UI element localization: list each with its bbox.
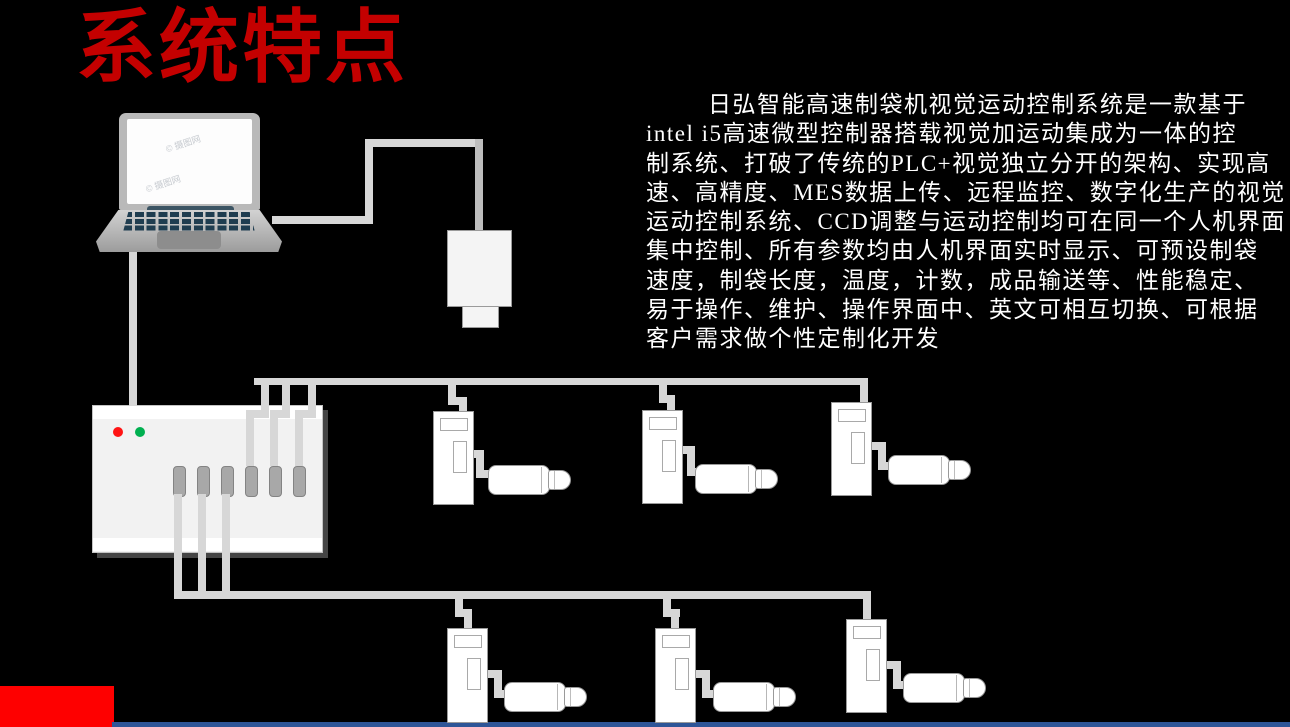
motor-shaft (963, 678, 986, 698)
status-led-green (135, 427, 145, 437)
power-led-red (113, 427, 123, 437)
shaft-line (761, 470, 762, 488)
drive-slot (467, 658, 481, 690)
controller-port (221, 466, 234, 497)
drive-slot (662, 440, 676, 472)
controller-port (269, 466, 282, 497)
shaft-line (969, 679, 970, 697)
camera-body (447, 230, 512, 307)
shaft-line (554, 471, 555, 489)
motor-endcap-line (956, 675, 957, 701)
motor-shaft (564, 687, 587, 707)
cable-bus-drive (671, 609, 679, 629)
cable-bus-drive (863, 599, 871, 620)
motor-endcap-line (541, 467, 542, 493)
page-title: 系统特点 (76, 6, 408, 90)
laptop-screen: © 摄图网 © 摄图网 (127, 119, 252, 204)
cable-laptop-camera (272, 216, 373, 224)
description-line: 运动控制系统、CCD调整与运动控制均可在同一个人机界面 (646, 207, 1288, 236)
controller-port (197, 466, 210, 497)
description-line: 集中控制、所有参数均由人机界面实时显示、可预设制袋 (646, 236, 1288, 265)
description-line: 速、高精度、MES数据上传、远程监控、数字化生产的视觉 (646, 178, 1288, 207)
laptop-keyboard (123, 212, 255, 232)
description-text: 日弘智能高速制袋机视觉运动控制系统是一款基于 intel i5高速微型控制器搭载… (646, 90, 1288, 354)
cable-port-bottom-bus (198, 494, 206, 595)
motor-shaft (755, 469, 778, 489)
description-line: 客户需求做个性定制化开发 (646, 324, 1288, 353)
controller-bottom-strip (93, 538, 322, 551)
cable-laptop-camera (475, 139, 483, 231)
servo-motor (903, 673, 989, 704)
drive-slot (675, 658, 689, 690)
motor-shaft (948, 460, 971, 480)
watermark-text: © 摄图网 (144, 172, 182, 196)
servo-motor (695, 464, 781, 495)
cable-laptop-camera (365, 139, 483, 147)
drive-slot (453, 441, 467, 473)
cable-bus-port (246, 410, 254, 466)
description-line: 易于操作、维护、操作界面中、英文可相互切换、可根据 (646, 295, 1288, 324)
drive-slot (851, 432, 865, 464)
drive-slot (866, 649, 880, 681)
servo-motor (504, 682, 590, 713)
red-accent-rectangle (0, 686, 114, 727)
servo-drive (433, 411, 474, 505)
laptop-trackpad (157, 231, 221, 249)
shaft-line (570, 688, 571, 706)
cable-port-bottom-bus (222, 494, 230, 595)
servo-drive (831, 402, 872, 496)
watermark-text: © 摄图网 (164, 132, 202, 156)
description-line: 日弘智能高速制袋机视觉运动控制系统是一款基于 (646, 90, 1288, 119)
servo-drive (655, 628, 696, 723)
motor-shaft (548, 470, 571, 490)
blue-footer-bar (112, 722, 1290, 727)
slide-canvas: 系统特点 日弘智能高速制袋机视觉运动控制系统是一款基于 intel i5高速微型… (0, 0, 1290, 727)
laptop-lid: © 摄图网 © 摄图网 (119, 113, 260, 210)
servo-drive (642, 410, 683, 504)
controller-port (245, 466, 258, 497)
description-line: 速度，制袋长度，温度，计数，成品输送等、性能稳定、 (646, 266, 1288, 295)
servo-motor (713, 682, 799, 713)
cable-bus-port (270, 410, 278, 466)
drive-display (454, 635, 482, 648)
cable-top-bus (254, 378, 868, 385)
servo-motor (888, 455, 974, 486)
shaft-line (779, 688, 780, 706)
controller-port (293, 466, 306, 497)
drive-display (662, 635, 690, 648)
cable-laptop-controller (129, 250, 137, 406)
drive-display (838, 409, 866, 422)
camera-illustration (447, 230, 517, 330)
motor-endcap-line (748, 466, 749, 492)
drive-display (853, 626, 881, 639)
laptop-illustration: © 摄图网 © 摄图网 (96, 110, 286, 255)
cable-bottom-bus (174, 591, 871, 599)
cable-bus-drive (459, 397, 467, 412)
shaft-line (954, 461, 955, 479)
drive-display (649, 417, 677, 430)
motor-endcap-line (557, 684, 558, 710)
motion-controller (92, 405, 323, 553)
motor-endcap-line (766, 684, 767, 710)
servo-motor (488, 465, 574, 496)
drive-display (440, 418, 468, 431)
cable-bus-port (295, 410, 303, 466)
description-line: intel i5高速微型控制器搭载视觉加运动集成为一体的控 (646, 119, 1288, 148)
controller-port (173, 466, 186, 497)
cable-bus-drive (667, 395, 675, 411)
cable-port-bottom-bus (174, 494, 182, 595)
servo-drive (846, 619, 887, 713)
servo-drive (447, 628, 488, 723)
motor-shaft (773, 687, 796, 707)
cable-bus-drive (464, 609, 472, 629)
motor-endcap-line (941, 457, 942, 483)
description-line: 制系统、打破了传统的PLC+视觉独立分开的架构、实现高 (646, 149, 1288, 178)
cable-laptop-camera (365, 139, 373, 224)
camera-lens (462, 306, 499, 328)
cable-bus-drive (860, 385, 868, 403)
